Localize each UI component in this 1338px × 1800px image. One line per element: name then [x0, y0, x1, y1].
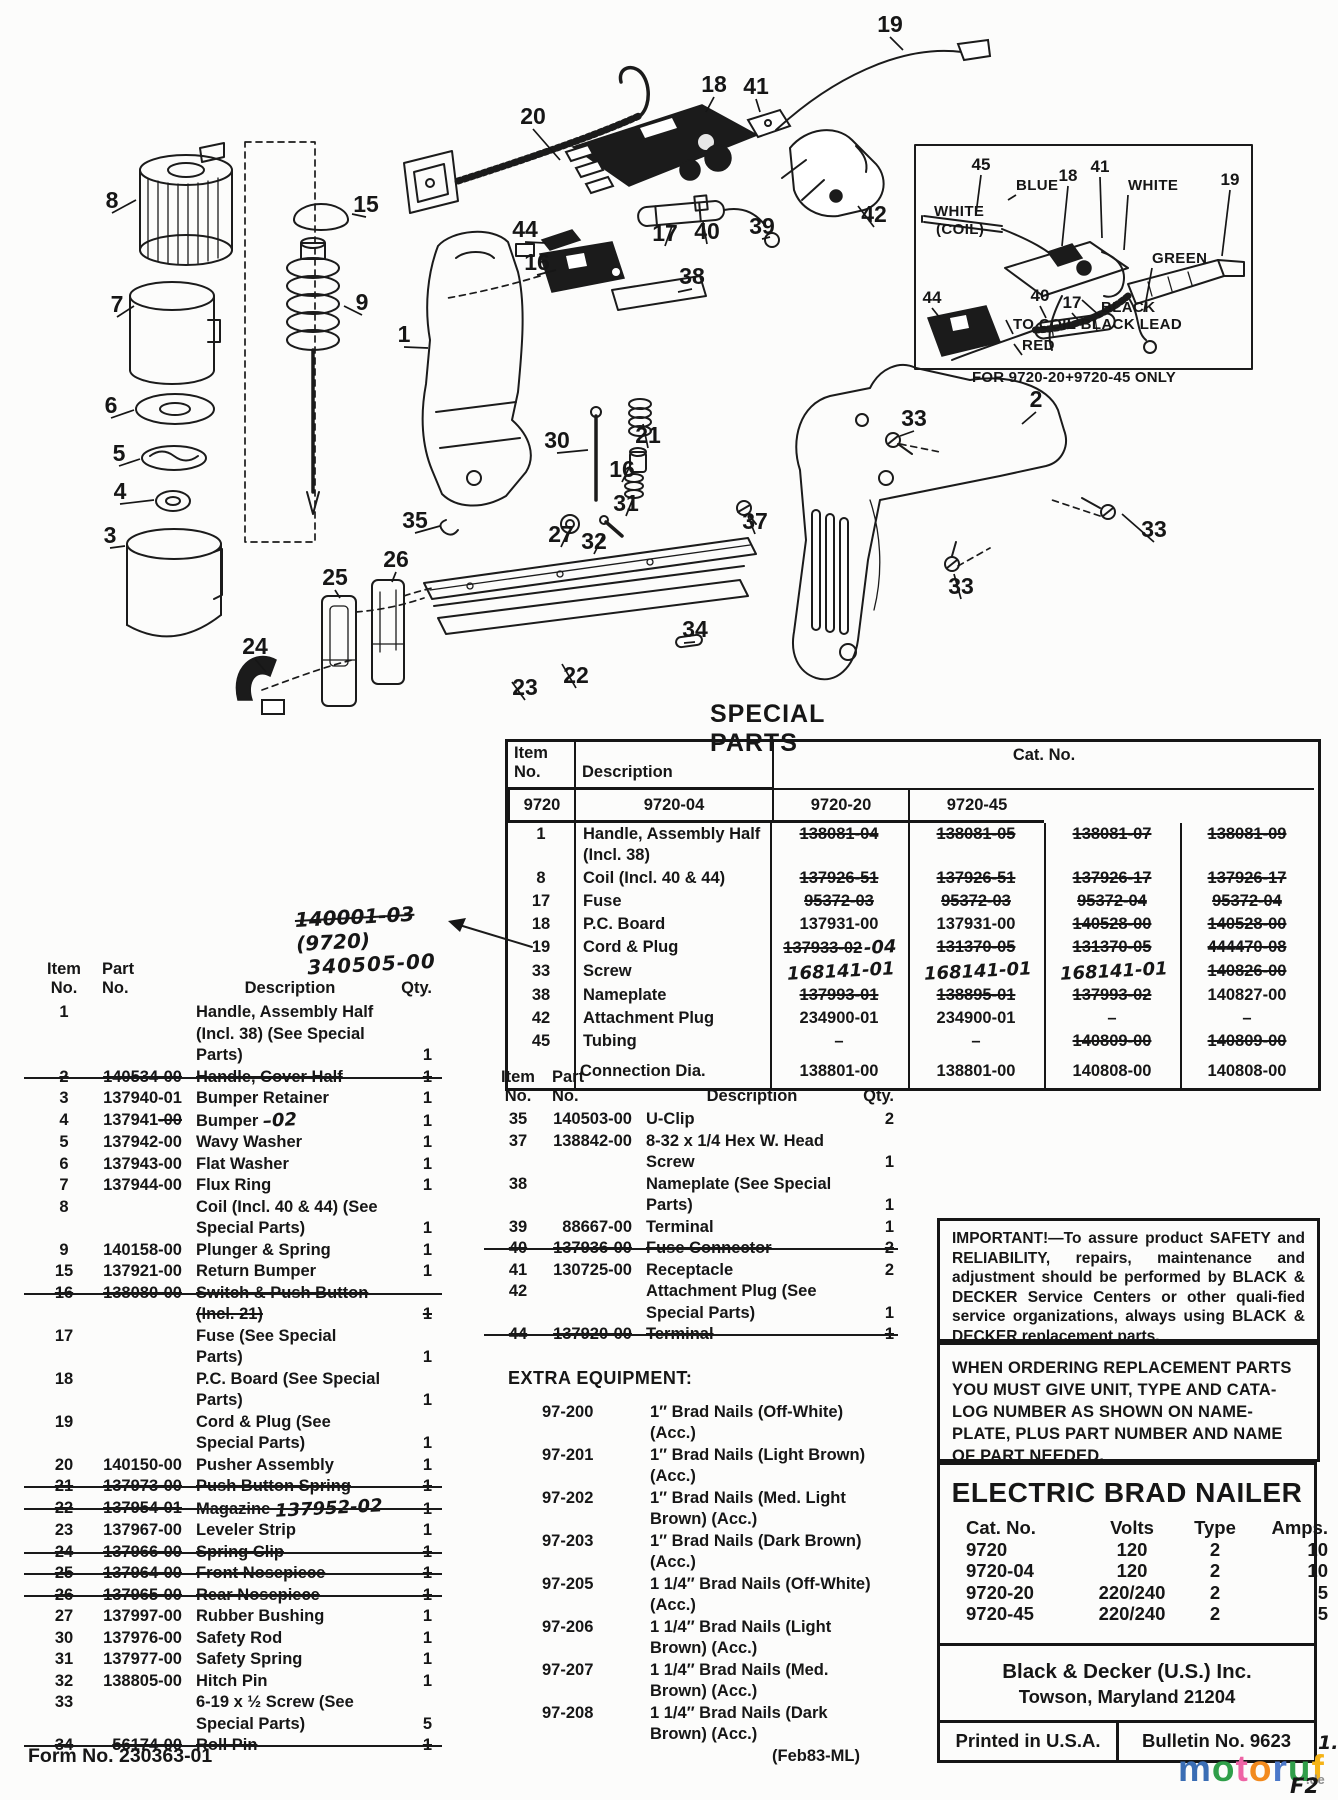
parts-list-row: 27 137997-00 Rubber Bushing 1 — [38, 1606, 438, 1628]
nameplate-title: ELECTRIC BRAD NAILER — [940, 1465, 1314, 1517]
parts-list-row: 7 137944-00 Flux Ring 1 — [38, 1175, 438, 1197]
svg-text:39: 39 — [749, 213, 775, 239]
special-parts-row: 33 Screw 168141-01 168141-01 168141-01 1… — [508, 960, 1318, 984]
parts-list-row: 3 137940-01 Bumper Retainer 1 — [38, 1088, 438, 1110]
svg-text:RED: RED — [1022, 337, 1055, 354]
safety-rod-art — [591, 407, 601, 500]
parts-list-row: 23 137967-00 Leveler Strip 1 — [38, 1520, 438, 1542]
parts-list-row: 8 Coil (Incl. 40 & 44) (See Special Part… — [38, 1197, 438, 1240]
scanned-parts-manual-page: { "diagram": { "inset_caption": "FOR 972… — [0, 0, 1338, 1800]
parts-list-row: 25 137964-00 Front Nosepiece 1 — [38, 1563, 438, 1585]
extra-equipment-row: 97-206 1 1/4″ Brad Nails (Light Brown) (… — [542, 1617, 885, 1660]
svg-text:33: 33 — [948, 573, 974, 599]
svg-text:9: 9 — [356, 289, 369, 315]
svg-text:38: 38 — [679, 263, 705, 289]
svg-text:BLACK: BLACK — [1101, 299, 1156, 316]
svg-text:15: 15 — [353, 191, 379, 217]
extra-equipment-section: EXTRA EQUIPMENT: 97-200 1″ Brad Nails (O… — [508, 1368, 885, 1746]
nameplate-row: 9720-20 220/240 2 5 — [940, 1582, 1314, 1604]
parts-list-row: 44 137920-00 Terminal 1 — [498, 1324, 894, 1346]
parts-list-row: 1 Handle, Assembly Half (Incl. 38) (See … — [38, 1002, 438, 1067]
company-address: Towson, Maryland 21204 — [940, 1686, 1314, 1708]
parts-list-row: 30 137976-00 Safety Rod 1 — [38, 1628, 438, 1650]
col-description: Description — [574, 742, 772, 790]
flux-ring-art — [130, 282, 220, 384]
inset-caption: FOR 9720-20+9720-45 ONLY — [972, 369, 1202, 386]
pcb-art — [566, 105, 757, 193]
special-parts-row: 19 Cord & Plug 137933-02-04 131370-05 13… — [508, 936, 1318, 960]
parts-list-row: 5 137942-00 Wavy Washer 1 — [38, 1132, 438, 1154]
svg-text:20: 20 — [520, 103, 546, 129]
special-parts-row: 42 Attachment Plug 234900-01 234900-01 –… — [508, 1007, 1318, 1030]
alignment-box — [245, 142, 315, 542]
parts-list-row: 38 Nameplate (See Special Parts) 1 — [498, 1174, 894, 1217]
svg-text:40: 40 — [1031, 286, 1050, 305]
nameplate-row: 9720-45 220/240 2 5 — [940, 1603, 1314, 1625]
svg-text:8: 8 — [106, 187, 119, 213]
parts-list-row: 9 140158-00 Plunger & Spring 1 — [38, 1240, 438, 1262]
special-parts-row: 38 Nameplate 137993-01 138895-01 137993-… — [508, 984, 1318, 1007]
svg-text:32: 32 — [581, 528, 607, 554]
svg-text:19: 19 — [1221, 170, 1240, 189]
housing-half-art — [423, 232, 534, 506]
svg-text:31: 31 — [613, 490, 639, 516]
parts-list-row: 26 137965-00 Rear Nosepiece 1 — [38, 1585, 438, 1607]
svg-text:1: 1 — [398, 321, 411, 347]
svg-text:23: 23 — [512, 674, 538, 700]
left-parts-list: ItemNo. PartNo. Description Qty. 1 Handl… — [38, 960, 438, 1757]
svg-text:45: 45 — [972, 155, 991, 174]
svg-text:40: 40 — [694, 218, 720, 244]
extra-equipment-row: 97-207 1 1/4″ Brad Nails (Med. Brown) (A… — [542, 1660, 885, 1703]
plunger-spring-art — [287, 238, 339, 514]
col-model-9720: 9720 — [508, 790, 574, 823]
ordering-text: WHEN ORDERING REPLACEMENT PARTS YOU MUST… — [952, 1359, 1292, 1465]
special-parts-header: Item No. Description Cat. No. 9720 9720-… — [508, 742, 1318, 823]
svg-text:24: 24 — [242, 633, 268, 659]
svg-text:(COIL): (COIL) — [936, 221, 984, 238]
parts-list-row: 18 P.C. Board (See Special Parts) 1 — [38, 1369, 438, 1412]
svg-text:34: 34 — [682, 616, 708, 642]
extra-equipment-title: EXTRA EQUIPMENT: — [508, 1368, 885, 1390]
parts-list-row: 32 138805-00 Hitch Pin 1 — [38, 1671, 438, 1693]
svg-text:26: 26 — [383, 546, 409, 572]
parts-list-row: 4 137941-00 Bumper–02 1 — [38, 1110, 438, 1133]
extra-equipment-row: 97-203 1″ Brad Nails (Dark Brown) (Acc.) — [542, 1531, 885, 1574]
svg-text:19: 19 — [877, 11, 903, 37]
col-cat-no: Cat. No. — [772, 742, 1314, 790]
svg-text:BLUE: BLUE — [1016, 177, 1058, 194]
screws-art — [886, 433, 1115, 571]
parts-list-row: 35 140503-00 U-Clip 2 — [498, 1109, 894, 1131]
parts-list-row: 21 137973-00 Push Button Spring 1 — [38, 1476, 438, 1498]
parts-list-row: 22 137954-01 Magazine137952-02 1 — [38, 1498, 438, 1521]
svg-text:18: 18 — [701, 71, 727, 97]
handwritten-annotation: 140001-03 (9720) 340505-00 — [294, 898, 488, 980]
form-number: Form No. 230363-01 — [28, 1745, 212, 1768]
nameplate-columns: Cat. No. Volts Type Amps. — [940, 1517, 1314, 1539]
important-body: —To assure product SAFETY and RELIABILIT… — [952, 1230, 1305, 1345]
special-parts-row: 45 Tubing – – 140809-00 140809-00 — [508, 1030, 1318, 1053]
return-bumper-art — [294, 204, 348, 230]
special-parts-row: 8 Coil (Incl. 40 & 44) 137926-51 137926-… — [508, 867, 1318, 890]
svg-text:WHITE: WHITE — [1128, 177, 1178, 194]
extra-equipment-row: 97-201 1″ Brad Nails (Light Brown) (Acc.… — [542, 1445, 885, 1488]
coil-spool-art — [140, 143, 232, 265]
parts-list-row: 24 137966-00 Spring Clip 1 — [38, 1542, 438, 1564]
svg-text:TO COIL BLACK LEAD: TO COIL BLACK LEAD — [1013, 316, 1182, 333]
nameplate-row: 9720-04 120 2 10 — [940, 1560, 1314, 1582]
svg-text:4: 4 — [114, 478, 127, 504]
svg-text:21: 21 — [635, 422, 661, 448]
parts-list-row: 42 Attachment Plug (See Special Parts) 1 — [498, 1281, 894, 1324]
flat-washer-art — [136, 394, 214, 424]
parts-list-row: 39 88667-00 Terminal 1 — [498, 1217, 894, 1239]
nosepiece-art — [322, 580, 404, 706]
middle-parts-list: ItemNo. PartNo. Description Qty. 35 1405… — [498, 1068, 894, 1346]
parts-list-row: 33 6-19 x ½ Screw (See Special Parts) 5 — [38, 1692, 438, 1735]
company-name: Black & Decker (U.S.) Inc. — [940, 1660, 1314, 1684]
nameplate-rows: 9720 120 2 10 9720-04 120 2 10 9720-20 2… — [940, 1539, 1314, 1644]
svg-text:30: 30 — [544, 427, 570, 453]
extra-equipment-row: 97-208 1 1/4″ Brad Nails (Dark Brown) (A… — [542, 1703, 885, 1746]
special-parts-row: 17 Fuse 95372-03 95372-03 95372-04 95372… — [508, 890, 1318, 913]
svg-text:33: 33 — [1141, 516, 1167, 542]
svg-text:7: 7 — [111, 291, 124, 317]
parts-list-row: 40 137936-00 Fuse Connector 2 — [498, 1238, 894, 1260]
extra-equipment-row: 97-200 1″ Brad Nails (Off-White) (Acc.) — [542, 1402, 885, 1445]
printed-in: Printed in U.S.A. — [940, 1723, 1119, 1760]
svg-text:WHITE: WHITE — [934, 203, 984, 220]
nameplate-row: 9720 120 2 10 — [940, 1539, 1314, 1561]
date-code: (Feb83-ML) — [772, 1747, 860, 1766]
svg-text:27: 27 — [548, 521, 574, 547]
svg-text:18: 18 — [1059, 166, 1078, 185]
ordering-notice-box: WHEN ORDERING REPLACEMENT PARTS YOU MUST… — [937, 1342, 1320, 1462]
parts-list-row: 19 Cord & Plug (See Special Parts) 1 — [38, 1412, 438, 1455]
parts-list-row: 15 137921-00 Return Bumper 1 — [38, 1261, 438, 1283]
important-title: IMPORTANT! — [952, 1230, 1048, 1247]
svg-text:41: 41 — [1091, 157, 1110, 176]
svg-text:GREEN: GREEN — [1152, 250, 1207, 267]
extra-equipment-row: 97-205 1 1/4″ Brad Nails (Off-White) (Ac… — [542, 1574, 885, 1617]
svg-text:17: 17 — [1063, 293, 1082, 312]
svg-text:35: 35 — [402, 507, 428, 533]
svg-text:44: 44 — [923, 288, 942, 307]
svg-text:25: 25 — [322, 564, 348, 590]
parts-list-row: 37 138842-00 8-32 x 1/4 Hex W. Head Scre… — [498, 1131, 894, 1174]
svg-text:41: 41 — [743, 73, 769, 99]
handwritten-mark-bottom: F2 — [1290, 1774, 1319, 1798]
important-notice-box: IMPORTANT!—To assure product SAFETY and … — [937, 1218, 1320, 1342]
svg-text:2: 2 — [1030, 386, 1043, 412]
svg-text:3: 3 — [104, 522, 117, 548]
cup-art — [127, 529, 222, 636]
parts-list-row: 6 137943-00 Flat Washer 1 — [38, 1154, 438, 1176]
parts-list-row: 17 Fuse (See Special Parts) 1 — [38, 1326, 438, 1369]
svg-text:16: 16 — [609, 456, 635, 482]
svg-text:16: 16 — [524, 249, 550, 275]
company-block: Black & Decker (U.S.) Inc. Towson, Maryl… — [940, 1643, 1314, 1720]
extra-equipment-row: 97-202 1″ Brad Nails (Med. Light Brown) … — [542, 1488, 885, 1531]
bumper-art — [156, 491, 190, 511]
svg-text:6: 6 — [105, 392, 118, 418]
parts-list-row: 20 140150-00 Pusher Assembly 1 — [38, 1455, 438, 1477]
nameplate-box: ELECTRIC BRAD NAILER Cat. No. Volts Type… — [937, 1462, 1317, 1763]
svg-text:44: 44 — [512, 216, 538, 242]
cord-and-plug-art — [776, 40, 990, 216]
svg-text:42: 42 — [861, 201, 887, 227]
special-parts-row: 18 P.C. Board 137931-00 137931-00 140528… — [508, 913, 1318, 936]
svg-text:22: 22 — [563, 662, 589, 688]
middle-parts-list-header: ItemNo. PartNo. Description Qty. — [498, 1068, 894, 1106]
handle-shell-art — [793, 365, 1066, 679]
col-model-9720-45: 9720-45 — [908, 790, 1044, 823]
svg-text:37: 37 — [742, 508, 768, 534]
parts-list-row: 31 137977-00 Safety Spring 1 — [38, 1649, 438, 1671]
col-model-9720-20: 9720-20 — [772, 790, 908, 823]
parts-list-row: 41 130725-00 Receptacle 2 — [498, 1260, 894, 1282]
svg-text:33: 33 — [901, 405, 927, 431]
svg-text:5: 5 — [113, 440, 126, 466]
handwritten-mark-top: 1. — [1318, 1732, 1338, 1754]
springs-pins-art — [440, 399, 756, 536]
special-parts-table: Item No. Description Cat. No. 9720 9720-… — [505, 739, 1321, 1091]
col-item-no: Item No. — [508, 742, 574, 790]
parts-list-row: 2 140534-00 Handle, Cover Half 1 — [38, 1067, 438, 1089]
svg-text:17: 17 — [652, 220, 678, 246]
col-model-9720-04: 9720-04 — [574, 790, 772, 823]
special-parts-row: 1 Handle, Assembly Half (Incl. 38) 13808… — [508, 823, 1318, 867]
parts-list-row: 16 138080-00 Switch & Push Button (Incl.… — [38, 1283, 438, 1326]
